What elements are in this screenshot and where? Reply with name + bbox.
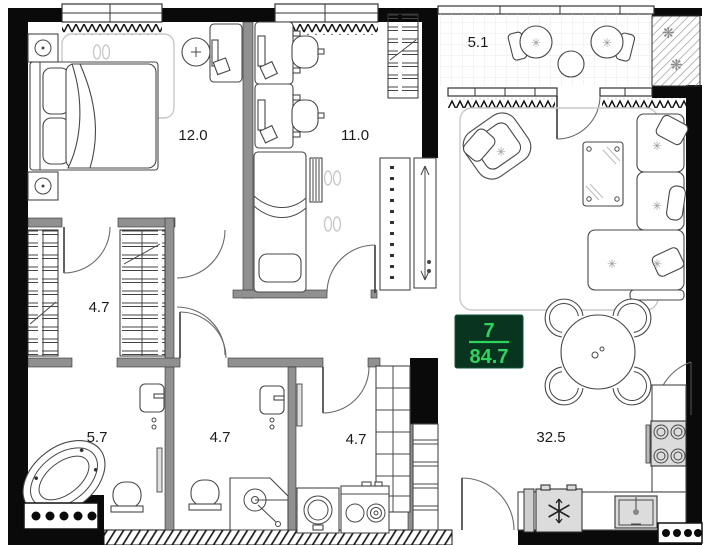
area-badge: 7 84.7 xyxy=(455,315,523,368)
office-wardrobe-shelving xyxy=(388,14,418,98)
radiator-zigzag-living-right xyxy=(602,98,686,108)
wall-right xyxy=(686,85,702,545)
wardrobe-shelving xyxy=(28,230,58,356)
partition-corridor-bath-2 xyxy=(117,358,180,367)
entrance-door xyxy=(462,478,514,530)
floor-plan-drawing: ❋ ❋ ✳ ✳ 5.1 xyxy=(0,0,710,545)
kitchen-sink xyxy=(615,496,657,528)
dryer xyxy=(341,482,389,533)
decor-asterisk-icon: ✳ xyxy=(602,36,612,50)
partition-closet-corridor xyxy=(165,218,174,530)
fridge xyxy=(536,485,582,532)
slippers-icon xyxy=(94,45,110,59)
decor-asterisk-icon: ✳ xyxy=(652,199,662,213)
office-desk xyxy=(255,22,293,84)
toilet xyxy=(189,480,221,510)
door-office-hall xyxy=(327,245,375,293)
room-label-office: 11.0 xyxy=(341,127,369,144)
mirror-sliding-door xyxy=(414,158,436,288)
partition-wc-laundry xyxy=(288,367,296,530)
wall-hall-block xyxy=(410,358,438,424)
room-label-bedroom: 12.0 xyxy=(178,127,207,144)
decor-asterisk-icon: ✳ xyxy=(531,36,541,50)
coffee-table xyxy=(583,142,623,206)
nightstand xyxy=(28,172,58,200)
window-bedroom xyxy=(62,4,162,22)
radiator-zigzag-living-left xyxy=(448,98,555,108)
sofa-armrest xyxy=(630,290,684,300)
monitor xyxy=(258,36,265,66)
room-label-closet: 4.7 xyxy=(89,299,110,316)
single-bed xyxy=(254,152,306,292)
door-shower-room xyxy=(180,312,226,358)
decor-asterisk-icon: ✳ xyxy=(652,257,662,271)
toilet xyxy=(111,482,143,512)
wall-bottom-hatched xyxy=(104,530,452,545)
wall-cabinet-sink xyxy=(260,386,284,429)
desk-chair xyxy=(292,31,324,73)
balcony: ❋ ❋ ✳ ✳ 5.1 xyxy=(440,14,700,86)
wall-left xyxy=(8,8,28,512)
partition-office-hall-2 xyxy=(371,290,377,298)
door-balcony xyxy=(557,96,600,139)
partition-bedroom-office xyxy=(243,22,253,298)
corner-sink xyxy=(230,478,288,530)
washing-machine xyxy=(297,488,339,533)
room-label-shower-room: 4.7 xyxy=(210,429,231,446)
badge-total-area: 84.7 xyxy=(470,346,509,368)
room-label-balcony: 5.1 xyxy=(468,34,489,51)
striped-mat xyxy=(310,158,322,202)
vent-grille xyxy=(658,523,702,543)
wall-top-2 xyxy=(162,8,275,22)
double-bed xyxy=(30,62,158,170)
planter-box xyxy=(652,16,700,86)
window-office xyxy=(275,4,378,22)
window-living-glazing xyxy=(448,88,652,96)
decor-asterisk-icon: ✳ xyxy=(607,257,617,271)
vent-grille xyxy=(24,503,98,529)
tall-cabinet xyxy=(380,158,410,290)
kitchen-cabinet xyxy=(524,489,534,532)
wardrobe-shelving xyxy=(120,230,165,356)
slippers-icon xyxy=(325,217,341,231)
bedroom-desk xyxy=(210,24,242,82)
sliding-door-leaf xyxy=(157,448,162,492)
bed-pillow xyxy=(43,118,69,164)
bedroom: 12.0 xyxy=(28,24,242,200)
sliding-door-leaf xyxy=(297,384,302,426)
room-label-bathroom: 5.7 xyxy=(87,429,108,446)
floor-plan: ❋ ❋ ✳ ✳ 5.1 xyxy=(0,0,710,545)
laundry: 4.7 xyxy=(297,431,389,533)
wall-office-balcony xyxy=(422,8,438,158)
door-closet-upper-swing xyxy=(177,230,225,278)
dining-table xyxy=(561,315,635,389)
stove xyxy=(646,421,686,466)
door-bedroom-closet xyxy=(64,227,110,273)
armchair: ✳ xyxy=(456,107,537,186)
office-desk xyxy=(255,84,293,148)
partition-bedroom-closet-1 xyxy=(28,218,62,227)
decor-asterisk-icon: ✳ xyxy=(496,145,506,159)
partition-corridor-bath-1 xyxy=(28,358,72,367)
partition-corridor-bath-3 xyxy=(228,358,323,367)
balcony-table xyxy=(558,51,584,77)
grid-cabinet xyxy=(413,424,438,530)
plant-icon: ❋ xyxy=(670,57,683,74)
slippers-icon xyxy=(325,171,341,185)
door-laundry xyxy=(323,367,369,413)
closet: 4.7 xyxy=(28,230,165,356)
shower-room: 4.7 xyxy=(189,384,302,530)
window-balcony-glazing-top xyxy=(438,6,654,14)
wall-top-right-corner xyxy=(652,8,702,16)
decor-asterisk-icon: ✳ xyxy=(652,139,662,153)
nightstand xyxy=(28,34,58,62)
monitor xyxy=(258,100,265,130)
bed-pillow xyxy=(43,68,69,114)
wall-top-1 xyxy=(8,8,62,22)
badge-unit-number: 7 xyxy=(483,320,494,342)
hallway xyxy=(376,158,438,530)
room-label-laundry: 4.7 xyxy=(346,431,367,448)
bedroom-chair xyxy=(182,38,210,66)
wall-cabinet-sink xyxy=(140,384,164,429)
desk-chair xyxy=(292,95,324,137)
room-label-living-kitchen: 32.5 xyxy=(536,429,565,446)
bed-pillow xyxy=(259,254,301,282)
plant-icon: ❋ xyxy=(662,25,675,42)
kitchen xyxy=(518,385,686,532)
